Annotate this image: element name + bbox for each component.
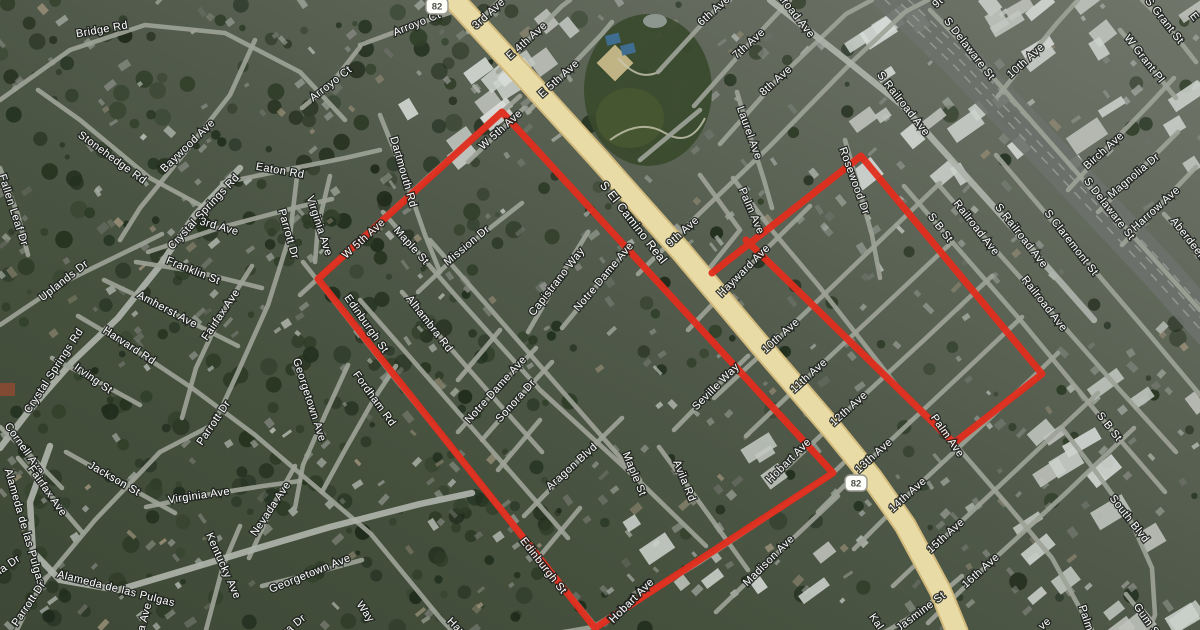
map-canvas[interactable]: Bridge RdStonehedge RdBaywood AveEaton R… — [0, 0, 1200, 630]
park-building — [643, 14, 667, 28]
park-lawn — [596, 88, 664, 148]
satellite-map-view[interactable]: Bridge RdStonehedge RdBaywood AveEaton R… — [0, 0, 1200, 630]
svg-text:82: 82 — [432, 2, 443, 13]
route-82-shield: 82 — [845, 475, 867, 491]
svg-text:82: 82 — [851, 479, 862, 490]
route-82-shield: 82 — [426, 0, 448, 14]
